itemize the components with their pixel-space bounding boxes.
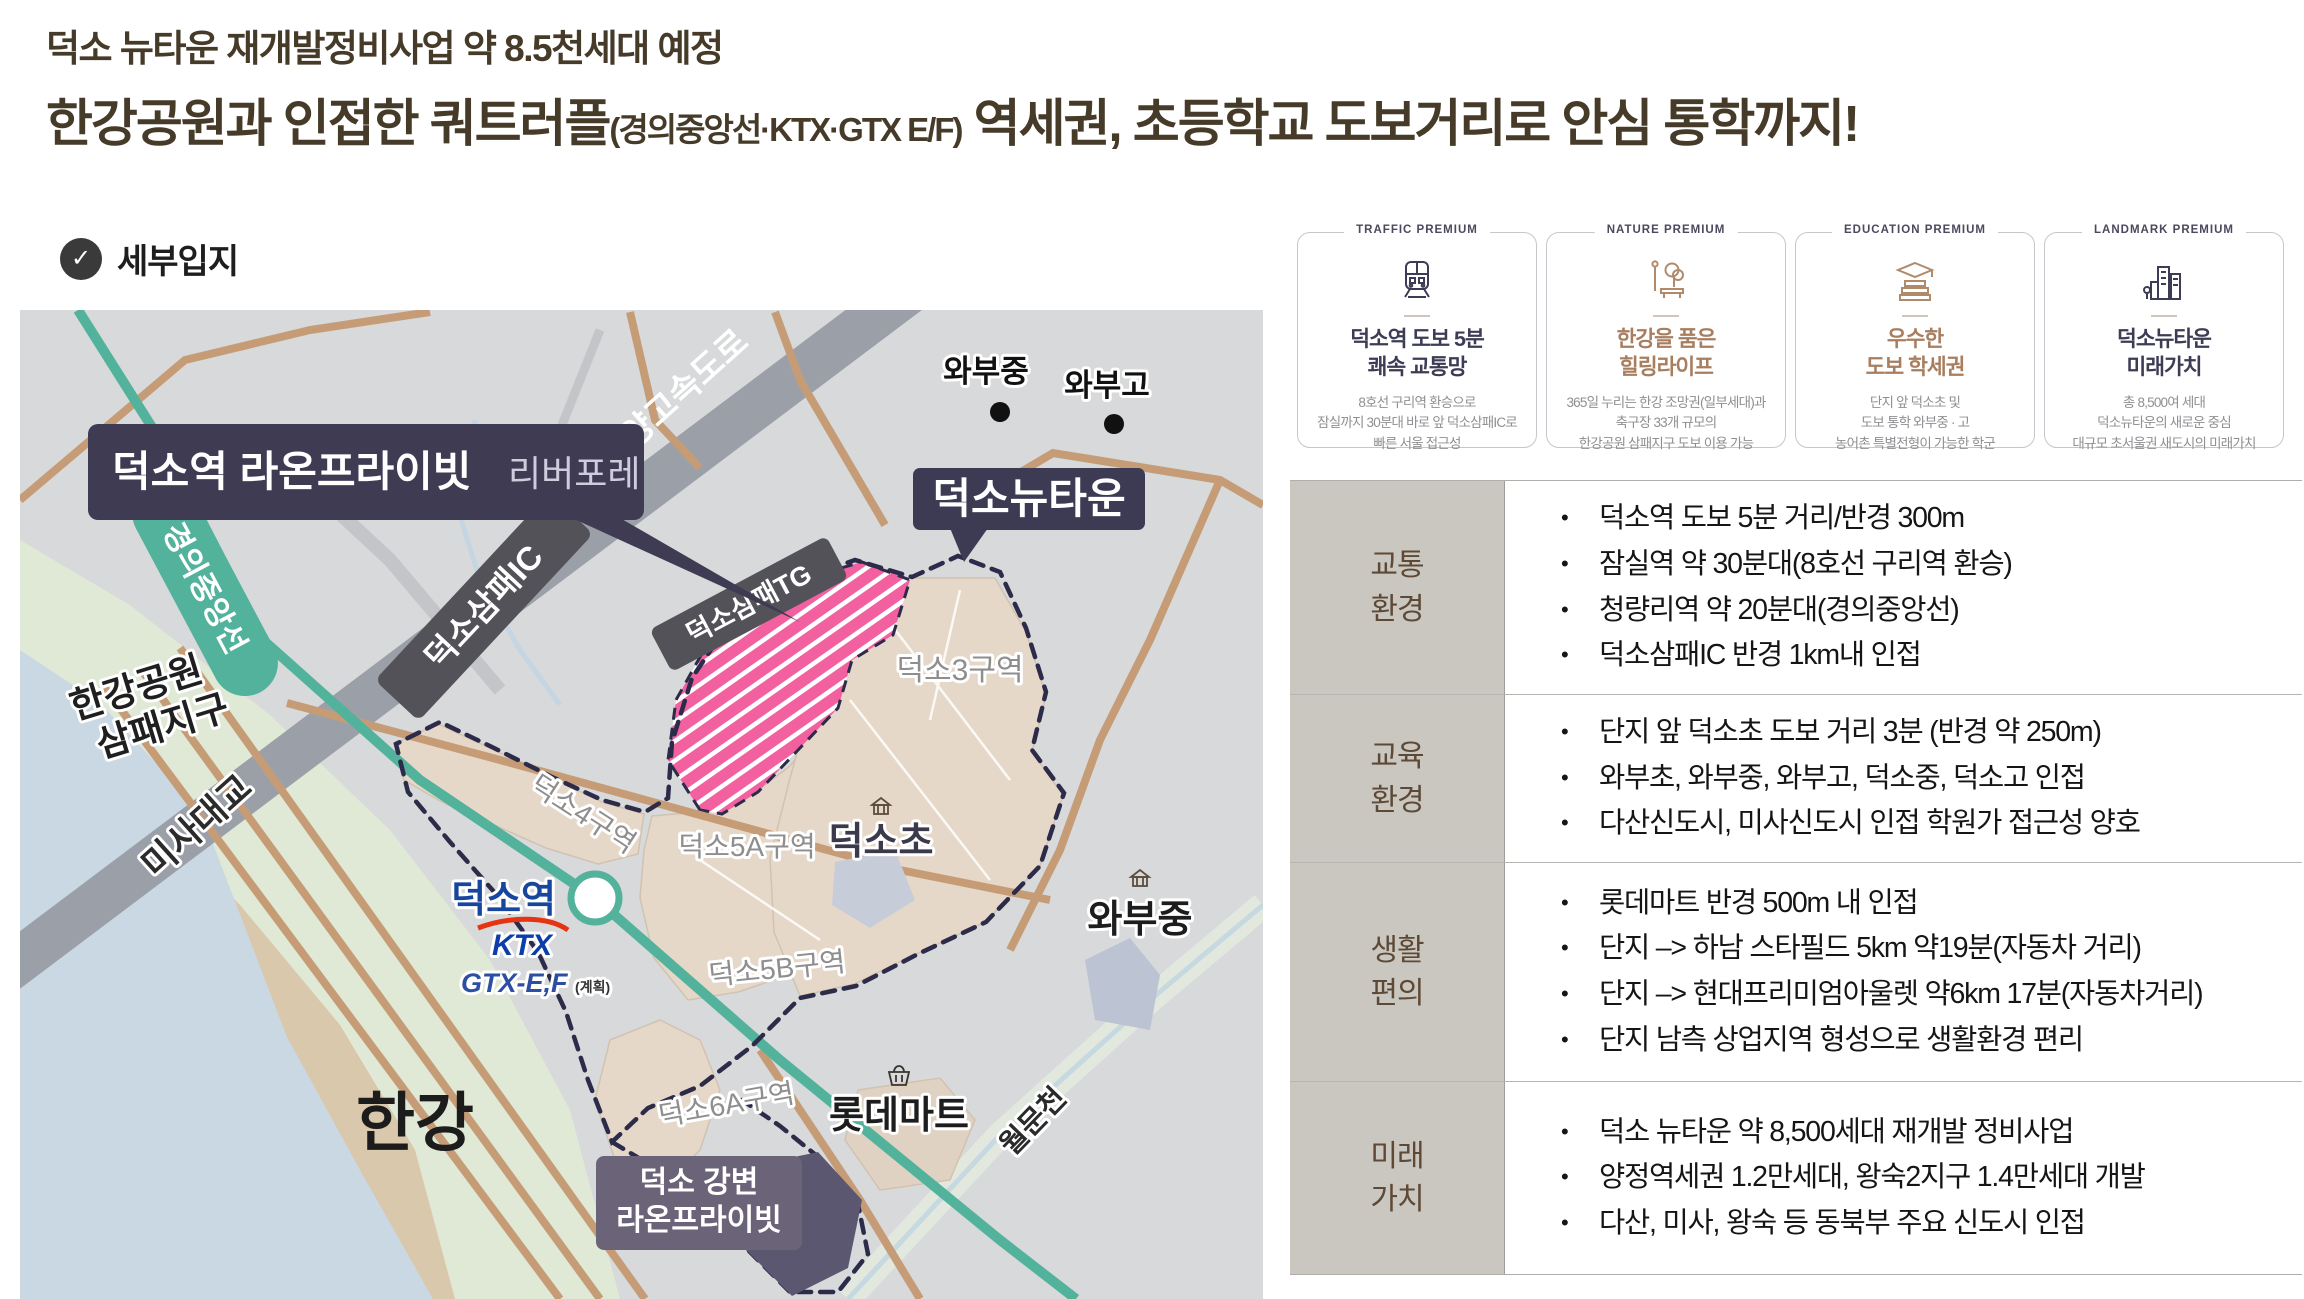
page: 덕소 뉴타운 재개발정비사업 약 8.5천세대 예정 한강공원과 인접한 쿼트러… (0, 0, 2304, 1299)
station-marker (571, 874, 619, 922)
table-item: 양정역세권 1.2만세대, 왕숙2지구 1.4만세대 개발 (1547, 1155, 2292, 1201)
station-label: 덕소역 (451, 879, 556, 921)
table-item: 롯데마트 반경 500m 내 인접 (1547, 881, 2292, 927)
card-title: 덕소뉴타운미래가치 (2045, 326, 2283, 381)
headline-line1: 덕소 뉴타운 재개발정비사업 약 8.5천세대 예정 (46, 18, 1858, 72)
table-item: 와부초, 와부중, 와부고, 덕소중, 덕소고 인접 (1547, 756, 2292, 802)
card-education-premium: EDUCATION PREMIUM 우수한도보 학세권 단지 앞 덕소초 및도보… (1795, 232, 2035, 448)
mart-label: 롯데마트 (829, 1095, 969, 1137)
headline-line2-paren: (경의중앙선·KTX·GTX E/F) (609, 111, 961, 148)
table-item: 단지 –> 하남 스타필드 5km 약19분(자동차 거리) (1547, 926, 2292, 972)
card-traffic-premium: TRAFFIC PREMIUM 덕소역 도보 5분쾌속 교통망 8호선 구리역 … (1297, 232, 1537, 448)
row-content: 단지 앞 덕소초 도보 거리 3분 (반경 약 250m) 와부초, 와부중, … (1505, 695, 2302, 862)
graduation-icon (1796, 257, 2034, 305)
river-label: 한강 (356, 1087, 474, 1159)
card-body: 365일 누리는 한강 조망권(일부세대)과축구장 33개 규모의한강공원 삼패… (1547, 393, 1785, 454)
row-label: 교육환경 (1290, 695, 1505, 862)
row-content: 롯데마트 반경 500m 내 인접 단지 –> 하남 스타필드 5km 약19분… (1505, 863, 2302, 1081)
section-title: 세부입지 (117, 234, 238, 283)
svg-text:리버포레: 리버포레 (508, 453, 640, 494)
location-map: 경의중앙선 한강공원 삼패지구 미사대교 서울~양양고속도로 덕소삼패IC 덕소… (20, 310, 1263, 1299)
card-divider (2151, 315, 2177, 317)
headline-line2-main: 한강공원과 인접한 쿼트러플 (46, 95, 609, 152)
row-label: 미래가치 (1290, 1082, 1505, 1274)
row-label: 생활편의 (1290, 863, 1505, 1081)
wabu-high-label: 와부고 (1064, 368, 1150, 403)
card-body: 총 8,500여 세대덕소뉴타운의 새로운 중심대규모 초서울권 새도시의 미래… (2045, 393, 2283, 454)
wabu-high-dot (1104, 414, 1124, 434)
buildings-icon (2045, 257, 2283, 305)
headline-line2-rest: 역세권, 초등학교 도보거리로 안심 통학까지! (962, 95, 1859, 152)
deokso-elementary-label: 덕소초 (829, 821, 934, 863)
ktx-logo: KTX (492, 929, 554, 962)
zone5a-label: 덕소5A구역 (678, 831, 815, 862)
section-header: ✓ 세부입지 (60, 234, 238, 283)
table-item: 덕소삼패IC 반경 1km내 인접 (1547, 633, 2292, 679)
row-content: 덕소 뉴타운 약 8,500세대 재개발 정비사업 양정역세권 1.2만세대, … (1505, 1082, 2302, 1274)
card-tag: LANDMARK PREMIUM (2082, 224, 2246, 236)
card-divider (1404, 315, 1430, 317)
wabu-middle-bottom-label: 와부중 (1088, 899, 1193, 941)
card-body: 8호선 구리역 환승으로잠실까지 30분대 바로 앞 덕소삼패IC로빠른 서울 … (1298, 393, 1536, 454)
card-body: 단지 앞 덕소초 및도보 통학 와부중 · 고농어촌 특별전형이 가능한 학군 (1796, 393, 2034, 454)
table-item: 단지 남측 상업지역 형성으로 생활환경 편리 (1547, 1018, 2292, 1064)
headline-line2: 한강공원과 인접한 쿼트러플(경의중앙선·KTX·GTX E/F) 역세권, 초… (46, 82, 1858, 156)
card-landmark-premium: LANDMARK PREMIUM 덕소뉴타운미래가치 총 8,500여 세대덕소… (2044, 232, 2284, 448)
map-canvas: 경의중앙선 한강공원 삼패지구 미사대교 서울~양양고속도로 덕소삼패IC 덕소… (20, 310, 1263, 1299)
card-nature-premium: NATURE PREMIUM 한강을 품은힐링라이프 365일 누리는 한강 조… (1546, 232, 1786, 448)
svg-text:덕소역 라온프라이빗: 덕소역 라온프라이빗 (112, 448, 471, 495)
headline: 덕소 뉴타운 재개발정비사업 약 8.5천세대 예정 한강공원과 인접한 쿼트러… (46, 18, 1858, 156)
table-item: 다산신도시, 미사신도시 인접 학원가 접근성 양호 (1547, 801, 2292, 847)
check-circle-icon: ✓ (60, 238, 102, 280)
table-item: 잠실역 약 30분대(8호선 구리역 환승) (1547, 542, 2292, 588)
card-title: 우수한도보 학세권 (1796, 326, 2034, 381)
wabu-middle-dot (990, 402, 1010, 422)
card-tag: EDUCATION PREMIUM (1832, 224, 1998, 236)
table-row-traffic: 교통환경 덕소역 도보 5분 거리/반경 300m 잠실역 약 30분대(8호선… (1290, 481, 2302, 695)
svg-text:라온프라이빗: 라온프라이빗 (616, 1204, 782, 1237)
table-item: 청량리역 약 20분대(경의중앙선) (1547, 588, 2292, 634)
wabu-middle-top-label: 와부중 (943, 354, 1029, 389)
project-banner: 덕소역 라온프라이빗 리버포레 (88, 424, 644, 520)
table-item: 다산, 미사, 왕숙 등 동북부 주요 신도시 인접 (1547, 1201, 2292, 1247)
zone3-label: 덕소3구역 (896, 654, 1023, 687)
row-content: 덕소역 도보 5분 거리/반경 300m 잠실역 약 30분대(8호선 구리역 … (1505, 481, 2302, 694)
svg-text:덕소뉴타운: 덕소뉴타운 (932, 475, 1125, 522)
card-title: 한강을 품은힐링라이프 (1547, 326, 1785, 381)
table-row-convenience: 생활편의 롯데마트 반경 500m 내 인접 단지 –> 하남 스타필드 5km… (1290, 863, 2302, 1082)
card-title: 덕소역 도보 5분쾌속 교통망 (1298, 326, 1536, 381)
table-item: 단지 앞 덕소초 도보 거리 3분 (반경 약 250m) (1547, 710, 2292, 756)
park-icon (1547, 257, 1785, 305)
table-item: 덕소역 도보 5분 거리/반경 300m (1547, 496, 2292, 542)
table-item: 덕소 뉴타운 약 8,500세대 재개발 정비사업 (1547, 1110, 2292, 1156)
riverside-badge: 덕소 강변 라온프라이빗 (596, 1156, 802, 1250)
train-icon (1298, 257, 1536, 305)
svg-text:덕소 강변: 덕소 강변 (640, 1166, 759, 1199)
card-divider (1902, 315, 1928, 317)
table-row-future: 미래가치 덕소 뉴타운 약 8,500세대 재개발 정비사업 양정역세권 1.2… (1290, 1082, 2302, 1274)
card-divider (1653, 315, 1679, 317)
card-tag: TRAFFIC PREMIUM (1344, 224, 1490, 236)
table-item: 단지 –> 현대프리미엄아울렛 약6km 17분(자동차거리) (1547, 972, 2292, 1018)
table-row-education: 교육환경 단지 앞 덕소초 도보 거리 3분 (반경 약 250m) 와부초, … (1290, 695, 2302, 863)
card-tag: NATURE PREMIUM (1595, 224, 1738, 236)
row-label: 교통환경 (1290, 481, 1505, 694)
location-info-table: 교통환경 덕소역 도보 5분 거리/반경 300m 잠실역 약 30분대(8호선… (1290, 480, 2302, 1275)
